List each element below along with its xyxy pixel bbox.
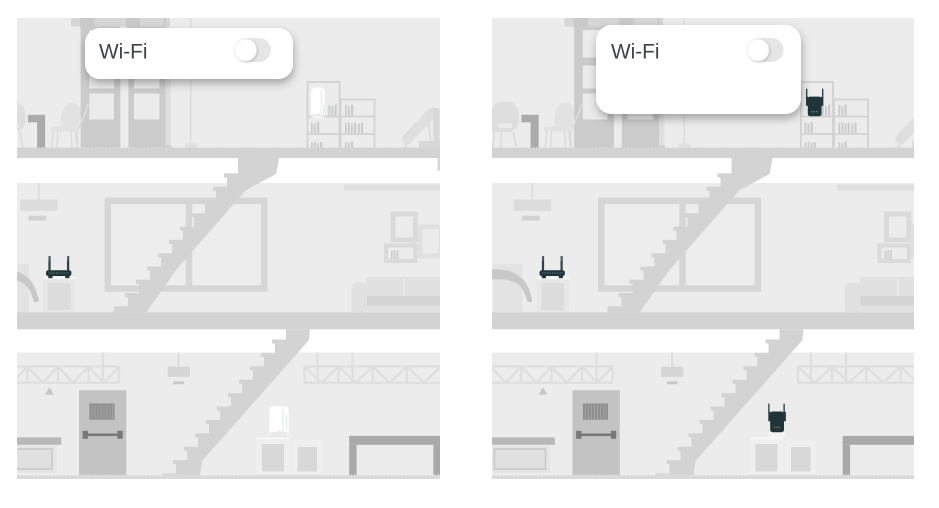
svg-text:Wi-Fi: Wi-Fi [611,40,660,63]
svg-text:Wi-Fi: Wi-Fi [99,40,148,63]
